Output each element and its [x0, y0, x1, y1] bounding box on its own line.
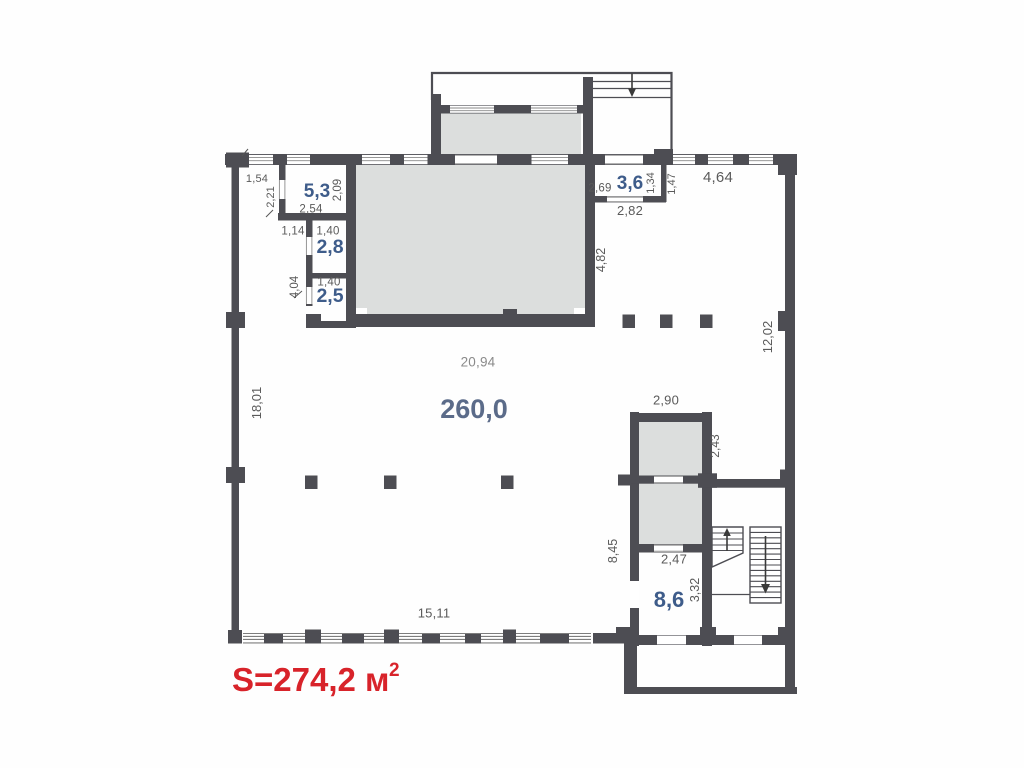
svg-text:2,09: 2,09: [332, 179, 344, 201]
svg-text:4,82: 4,82: [594, 248, 608, 272]
svg-text:8,45: 8,45: [606, 539, 620, 563]
svg-text:1,14: 1,14: [281, 226, 305, 238]
svg-text:4,04: 4,04: [289, 275, 301, 298]
svg-text:1,54: 1,54: [246, 173, 268, 185]
svg-text:15,11: 15,11: [418, 606, 451, 621]
svg-text:5,3: 5,3: [304, 181, 330, 202]
svg-text:2,43: 2,43: [708, 434, 722, 458]
svg-text:8,6: 8,6: [654, 587, 685, 612]
svg-text:3,6: 3,6: [617, 173, 643, 194]
svg-text:2,8: 2,8: [316, 236, 343, 258]
svg-text:2,90: 2,90: [653, 393, 679, 408]
svg-text:2,21: 2,21: [265, 186, 277, 207]
svg-text:1,47: 1,47: [666, 173, 678, 194]
svg-text:12,02: 12,02: [760, 321, 775, 354]
svg-text:260,0: 260,0: [440, 394, 508, 424]
svg-text:1,34: 1,34: [645, 172, 657, 193]
svg-text:2: 2: [389, 660, 400, 681]
svg-text:2,82: 2,82: [617, 203, 643, 218]
svg-text:18,01: 18,01: [249, 387, 264, 420]
svg-text:2,54: 2,54: [299, 204, 323, 216]
svg-text:S=274,2 м: S=274,2 м: [232, 661, 389, 698]
svg-text:3,32: 3,32: [688, 578, 702, 602]
svg-text:2,5: 2,5: [316, 285, 343, 307]
svg-text:4,64: 4,64: [703, 169, 733, 186]
svg-text:2,47: 2,47: [661, 552, 687, 567]
svg-text:20,94: 20,94: [461, 355, 496, 370]
svg-text:2,69: 2,69: [588, 183, 611, 195]
